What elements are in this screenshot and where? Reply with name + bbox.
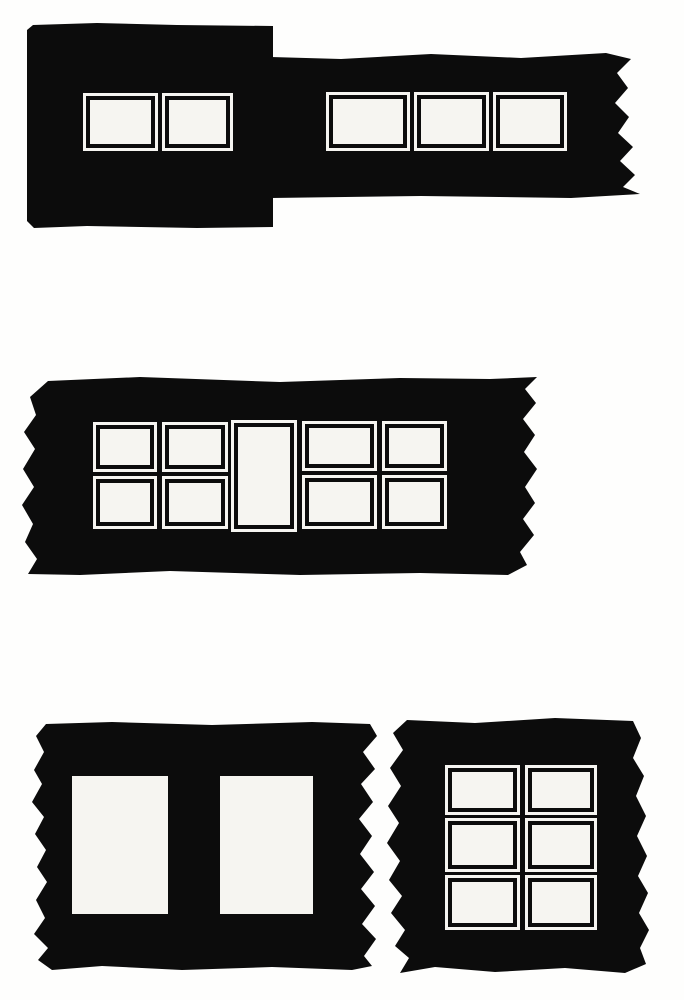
window-pane	[528, 821, 594, 869]
window-pane	[165, 96, 230, 148]
framed-window-aperture	[162, 93, 233, 151]
filmstrip-bottom-right	[385, 718, 650, 973]
framed-window-aperture	[302, 421, 377, 471]
plain-window-aperture	[220, 776, 313, 914]
filmstrip-top-left	[27, 23, 273, 228]
window-pane	[96, 425, 154, 469]
plain-window-aperture	[72, 776, 168, 914]
filmstrip-middle	[20, 377, 537, 575]
figure-canvas	[0, 0, 684, 1000]
framed-window-aperture	[382, 475, 447, 529]
window-pane	[528, 768, 594, 812]
framed-window-aperture	[302, 475, 377, 529]
framed-window-aperture	[382, 421, 447, 471]
window-pane	[448, 821, 517, 869]
window-pane	[417, 95, 486, 148]
window-pane	[385, 478, 444, 526]
window-pane	[385, 424, 444, 468]
framed-window-aperture	[445, 765, 520, 815]
framed-window-aperture	[493, 92, 567, 151]
window-pane	[234, 423, 294, 529]
window-pane	[165, 479, 225, 526]
framed-window-aperture	[525, 818, 597, 872]
framed-window-aperture	[326, 92, 410, 151]
filmstrip-bottom-left	[32, 722, 377, 970]
window-pane	[165, 425, 225, 469]
window-pane	[448, 878, 517, 927]
window-pane	[86, 96, 155, 148]
window-pane	[96, 479, 154, 526]
framed-window-aperture	[162, 422, 228, 472]
window-pane	[329, 95, 407, 148]
framed-window-aperture	[445, 818, 520, 872]
framed-window-aperture	[93, 476, 157, 529]
framed-window-aperture	[445, 875, 520, 930]
framed-window-aperture	[83, 93, 158, 151]
framed-window-aperture	[231, 420, 297, 532]
framed-window-aperture	[525, 765, 597, 815]
window-pane	[528, 878, 594, 927]
framed-window-aperture	[525, 875, 597, 930]
window-pane	[305, 424, 374, 468]
filmstrip-top-right	[271, 53, 640, 198]
window-pane	[496, 95, 564, 148]
framed-window-aperture	[414, 92, 489, 151]
framed-window-aperture	[93, 422, 157, 472]
window-pane	[305, 478, 374, 526]
window-pane	[448, 768, 517, 812]
framed-window-aperture	[162, 476, 228, 529]
